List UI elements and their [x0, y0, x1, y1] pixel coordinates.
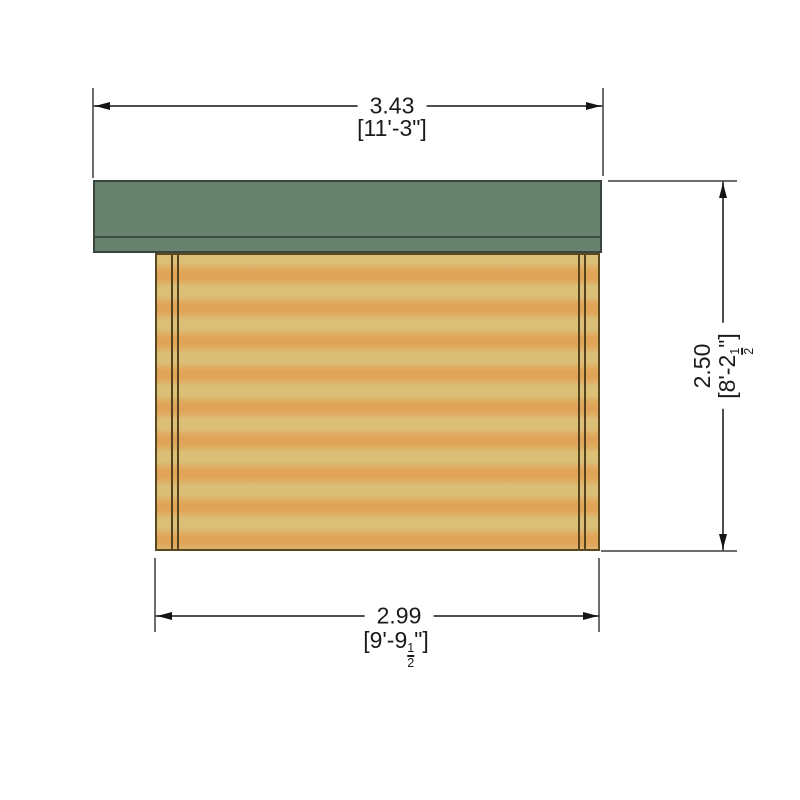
dim-top-arrow-right — [586, 102, 601, 110]
roof-fascia-line — [95, 236, 600, 238]
elevation-diagram: 3.43 [11'-3"] 2.50 [8'-212"] 2.99 [9'-91… — [0, 0, 800, 800]
corner-joint-line — [584, 255, 586, 549]
roof-panel — [93, 180, 602, 253]
dim-base-width-metric: 2.99 — [365, 604, 434, 629]
dim-bottom-extension-left — [154, 558, 156, 632]
dim-overall-height-label: 2.50 [8'-212"] — [686, 323, 760, 409]
dim-right-extension-top — [608, 180, 737, 182]
dim-top-extension-right — [602, 88, 604, 176]
log-wall — [155, 253, 600, 551]
dim-bottom-arrow-right — [583, 612, 598, 620]
dim-bottom-arrow-left — [157, 612, 172, 620]
dim-overall-height-imperial: [8'-212"] — [715, 333, 756, 399]
corner-joint-line — [578, 255, 580, 549]
dim-right-extension-bottom — [601, 550, 737, 552]
corner-joint-line — [171, 255, 173, 549]
corner-joint-line — [177, 255, 179, 549]
dim-overall-height-metric: 2.50 — [690, 333, 715, 399]
dim-top-arrow-left — [95, 102, 110, 110]
dim-right-arrow-up — [719, 183, 727, 198]
dim-overall-width-imperial: [11'-3"] — [357, 116, 427, 141]
dim-top-extension-left — [92, 88, 94, 178]
dim-base-width-imperial: [9'-912"] — [363, 628, 429, 669]
dim-bottom-extension-right — [598, 558, 600, 632]
dim-top-line — [93, 105, 603, 107]
dim-right-arrow-down — [719, 534, 727, 549]
